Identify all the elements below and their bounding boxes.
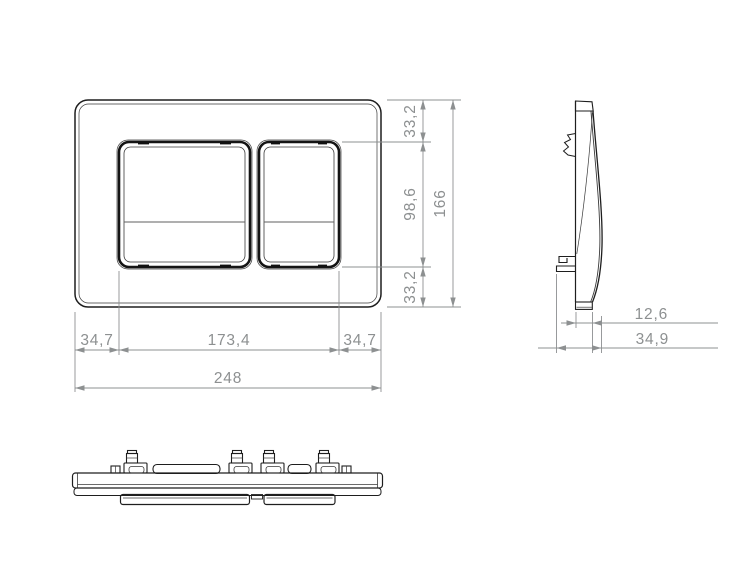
- front-vertical-dimensions: 33,2 98,6 33,2 166: [342, 100, 461, 307]
- plate-outline: [75, 100, 381, 307]
- technical-drawing-page: 33,2 98,6 33,2 166 34,7 173,4 34,7 248: [0, 0, 735, 579]
- dim-left-margin: 34,7: [80, 332, 113, 349]
- dim-total-width: 248: [214, 370, 242, 387]
- front-horizontal-dimensions: 34,7 173,4 34,7 248: [75, 271, 381, 392]
- dim-bottom-margin: 33,2: [402, 270, 419, 303]
- clip: [261, 451, 284, 474]
- large-flush-button: [117, 140, 252, 269]
- rear-fixing-clips: [111, 451, 351, 474]
- side-view-dimensions: 12,6 34,9: [538, 274, 718, 353]
- dim-buttons-width: 173,4: [208, 332, 251, 349]
- drawing-canvas: 33,2 98,6 33,2 166 34,7 173,4 34,7 248: [0, 0, 735, 579]
- bottom-view-plate-bar: [73, 473, 383, 488]
- dim-buttons-height: 98,6: [402, 187, 419, 220]
- dim-top-margin: 33,2: [402, 104, 419, 137]
- small-button-edge-ticks: [271, 143, 327, 266]
- dim-right-margin: 34,7: [343, 332, 376, 349]
- clip: [316, 451, 339, 474]
- front-view: [75, 100, 381, 307]
- rear-tab-wide: [153, 465, 220, 474]
- bottom-view: [73, 451, 383, 505]
- dim-total-depth: 34,9: [636, 331, 669, 348]
- rear-tab-small: [288, 465, 311, 474]
- small-flush-button: [257, 140, 341, 269]
- clip: [124, 451, 147, 474]
- dim-plate-thickness: 12,6: [635, 306, 668, 323]
- large-button-edge-ticks: [138, 143, 231, 266]
- side-view: [557, 101, 603, 309]
- clip: [229, 451, 252, 474]
- dim-total-height: 166: [432, 189, 449, 217]
